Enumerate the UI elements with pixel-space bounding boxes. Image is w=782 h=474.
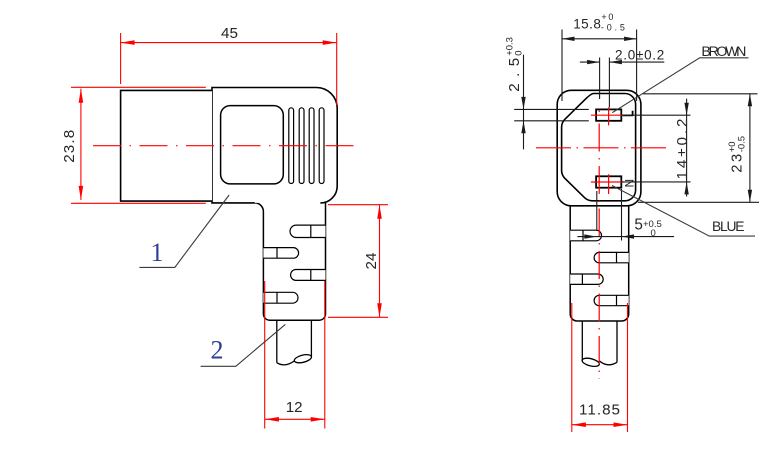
svg-text:14±0.2: 14±0.2	[674, 119, 691, 180]
svg-text:2.5: 2.5	[506, 58, 523, 92]
svg-text:12: 12	[286, 399, 303, 416]
svg-text:1: 1	[151, 238, 164, 267]
svg-text:-0.5: -0.5	[736, 136, 747, 152]
svg-text:+0: +0	[601, 12, 613, 22]
svg-text:BLUE: BLUE	[712, 219, 745, 234]
svg-text:5: 5	[634, 217, 643, 234]
svg-text:2.0±0.2: 2.0±0.2	[615, 48, 664, 63]
svg-text:15.8: 15.8	[573, 16, 601, 31]
svg-text:45: 45	[221, 25, 238, 42]
svg-text:-0.5: -0.5	[601, 23, 625, 33]
svg-text:11.85: 11.85	[579, 402, 620, 419]
svg-text:0: 0	[513, 51, 524, 56]
svg-text:BROWN: BROWN	[701, 44, 746, 60]
svg-text:24: 24	[363, 253, 380, 270]
svg-text:0: 0	[651, 228, 656, 239]
svg-text:23: 23	[730, 154, 746, 173]
svg-text:23.8: 23.8	[61, 130, 78, 163]
svg-text:N: N	[622, 179, 636, 188]
svg-text:2: 2	[211, 336, 224, 365]
